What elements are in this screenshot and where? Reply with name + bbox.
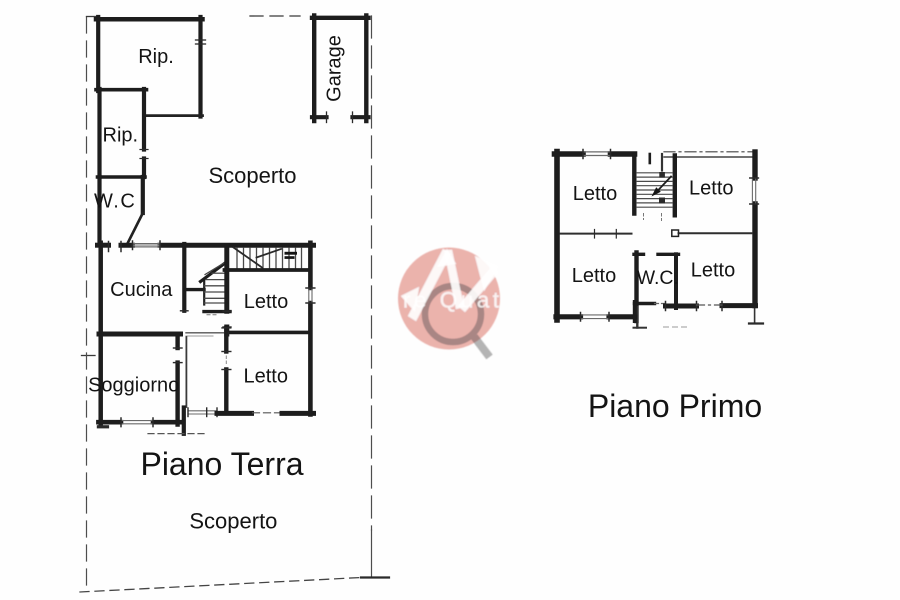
- svg-text:Scoperto: Scoperto: [208, 163, 296, 188]
- svg-text:Piano Primo: Piano Primo: [588, 388, 762, 424]
- svg-text:Letto: Letto: [244, 291, 288, 313]
- svg-text:Cucina: Cucina: [110, 279, 173, 301]
- svg-text:Letto: Letto: [689, 178, 733, 200]
- svg-text:Scoperto: Scoperto: [189, 508, 277, 533]
- svg-text:Rip.: Rip.: [138, 46, 174, 68]
- svg-text:Letto: Letto: [573, 183, 617, 205]
- svg-text:Letto: Letto: [691, 260, 735, 282]
- svg-text:Rip.: Rip.: [103, 125, 139, 147]
- svg-text:Piano Terra: Piano Terra: [140, 446, 303, 482]
- svg-text:W.C.: W.C.: [637, 267, 679, 289]
- svg-text:Letto: Letto: [243, 365, 287, 387]
- svg-text:Letto: Letto: [572, 265, 616, 287]
- svg-text:Garage: Garage: [324, 35, 346, 102]
- svg-text:Soggiorno: Soggiorno: [88, 374, 179, 396]
- svg-text:W.C: W.C: [94, 191, 136, 213]
- svg-text:re Quat: re Quat: [403, 288, 503, 313]
